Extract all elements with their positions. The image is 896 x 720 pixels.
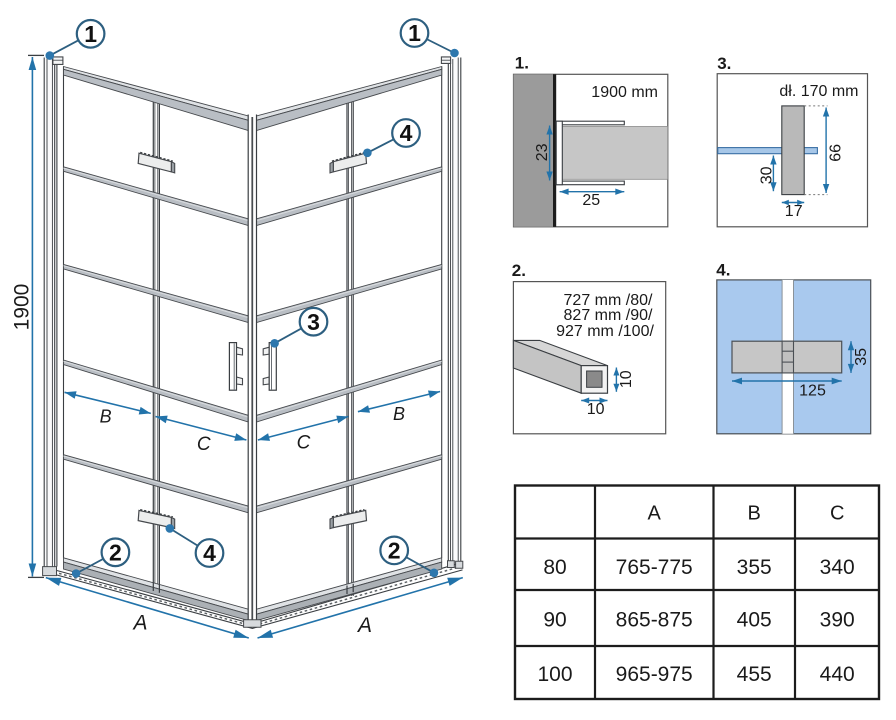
svg-text:66: 66 [827,144,844,162]
svg-text:90: 90 [543,609,566,632]
svg-text:965-975: 965-975 [616,663,693,686]
svg-text:827 mm /90/: 827 mm /90/ [564,307,653,324]
svg-text:23: 23 [534,143,551,161]
svg-text:3: 3 [307,309,320,335]
svg-text:1: 1 [84,21,97,47]
svg-text:A: A [356,614,372,637]
svg-text:765-775: 765-775 [616,556,693,579]
svg-text:1900: 1900 [11,284,34,331]
svg-text:455: 455 [737,663,772,686]
svg-text:35: 35 [853,348,870,366]
svg-text:10: 10 [587,401,605,418]
svg-text:B: B [748,503,761,525]
svg-text:10: 10 [618,370,635,388]
svg-text:100: 100 [537,663,572,686]
svg-text:355: 355 [737,556,772,579]
svg-text:125: 125 [799,382,826,399]
svg-text:405: 405 [737,609,772,632]
svg-text:4: 4 [203,540,216,566]
svg-text:927 mm /100/: 927 mm /100/ [556,323,654,340]
svg-text:865-875: 865-875 [616,609,693,632]
svg-text:25: 25 [582,192,600,209]
svg-text:B: B [393,404,405,424]
svg-text:1.: 1. [515,54,529,73]
svg-text:1: 1 [408,20,421,46]
svg-text:340: 340 [820,556,855,579]
svg-text:A: A [648,503,662,525]
svg-text:17: 17 [785,203,803,220]
svg-text:4: 4 [400,120,413,146]
svg-text:1900 mm: 1900 mm [591,84,658,101]
svg-text:2: 2 [388,538,401,564]
svg-text:3.: 3. [717,54,731,73]
svg-text:2.: 2. [512,261,526,280]
svg-text:dł. 170 mm: dł. 170 mm [779,83,858,100]
svg-text:C: C [297,433,311,454]
svg-text:B: B [100,407,112,427]
svg-text:A: A [131,612,147,635]
svg-text:4.: 4. [716,260,730,279]
svg-text:C: C [830,503,844,525]
svg-text:390: 390 [820,609,855,632]
svg-text:C: C [197,434,211,455]
svg-text:2: 2 [109,540,122,566]
svg-text:440: 440 [820,663,855,686]
svg-text:30: 30 [759,166,776,184]
svg-text:80: 80 [543,556,566,579]
